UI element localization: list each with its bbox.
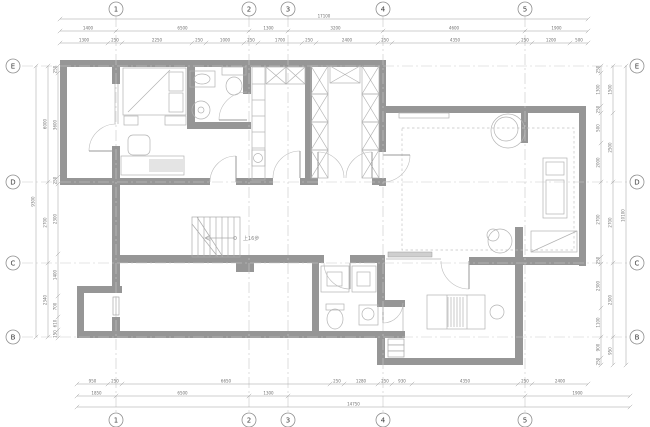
- wall: [60, 178, 116, 185]
- door-corridor-arc: [273, 151, 300, 178]
- dim-label: 250: [53, 65, 58, 73]
- dim-label: 14750: [347, 402, 360, 407]
- stair-arrow-head: [205, 238, 210, 241]
- dim-label: 2300: [53, 213, 58, 224]
- dim-label: 1300: [263, 391, 274, 396]
- dim-label: 2700: [596, 214, 601, 225]
- dim-label: 250: [596, 105, 601, 113]
- dim-label: 6000: [43, 118, 48, 129]
- dim-label: 1300: [263, 26, 274, 31]
- wall: [377, 300, 405, 307]
- dim-label: 250: [333, 379, 341, 384]
- grid-bubble-label-3: 3: [286, 417, 290, 425]
- vanity-counter: [321, 266, 349, 292]
- dim-label: 1280: [356, 379, 367, 384]
- grid-bubble-label-B: B: [635, 334, 640, 342]
- dim-label: 150: [53, 330, 58, 338]
- dim-label: 4600: [449, 26, 460, 31]
- wall: [379, 180, 386, 186]
- vanity-basin: [357, 272, 370, 286]
- dim-label: 6500: [177, 391, 188, 396]
- door-bathroom2-arc: [324, 263, 350, 289]
- dim-label: 930: [398, 379, 406, 384]
- dim-label: 1300: [79, 38, 90, 43]
- dim-label: 950: [608, 347, 613, 355]
- washer-drum: [254, 154, 263, 163]
- wall: [236, 178, 273, 185]
- dim-label: 950: [89, 379, 97, 384]
- wall: [77, 286, 84, 338]
- dim-label: 2500: [608, 142, 613, 153]
- wall: [243, 60, 251, 94]
- dim-label: 1100: [596, 317, 601, 328]
- dim-label: 250: [111, 38, 119, 43]
- desk: [121, 156, 184, 175]
- wall: [187, 60, 195, 124]
- grid-bubble-label-E: E: [11, 63, 15, 71]
- floor-plan: 1710014006500130032004600190013002502250…: [0, 0, 650, 427]
- floor-plan-page: 1710014006500130032004600190013002502250…: [0, 0, 650, 427]
- grid-bubble-label-E: E: [635, 63, 639, 71]
- wall: [485, 257, 586, 265]
- dim-label: 2300: [596, 280, 601, 291]
- dim-label: 17100: [318, 14, 331, 19]
- dim-label: 2700: [608, 217, 613, 228]
- dim-label: 250: [247, 38, 255, 43]
- dim-label: 4350: [460, 379, 471, 384]
- grid-bubble-label-2: 2: [247, 6, 251, 14]
- toilet-bowl: [327, 309, 343, 329]
- dim-label: 4350: [450, 38, 461, 43]
- grid-bubble-label-1: 1: [114, 417, 118, 425]
- ac-vent: [399, 113, 449, 118]
- grid-bubble-label-5: 5: [523, 6, 527, 14]
- door-left-room-arc: [89, 124, 116, 151]
- dim-label: 250: [521, 38, 529, 43]
- dim-label: 500: [596, 124, 601, 132]
- door-bathroom-arc: [219, 92, 247, 120]
- dim-label: 6650: [221, 379, 232, 384]
- dim-label: 250: [111, 379, 119, 384]
- door-closet-right-arc: [346, 152, 372, 178]
- shower-sink-basin: [362, 308, 374, 320]
- dim-label: 9300: [31, 196, 36, 207]
- grid-bubble-label-D: D: [634, 179, 639, 187]
- stool: [490, 305, 504, 319]
- dim-label: 1500: [608, 84, 613, 95]
- grid-bubble-label-D: D: [10, 179, 15, 187]
- dim-label: 900: [596, 343, 601, 351]
- wall: [515, 227, 523, 365]
- dim-label: 1000: [220, 38, 231, 43]
- lounge-chair-back: [487, 229, 499, 241]
- dim-label: 3600: [53, 119, 58, 130]
- dim-label: 10100: [621, 209, 626, 222]
- dim-label: 250: [521, 379, 529, 384]
- wall: [377, 255, 385, 305]
- dim-label: 1850: [91, 391, 102, 396]
- dim-label: 2700: [43, 217, 48, 228]
- wall: [377, 358, 523, 365]
- door-gym-side-arc: [383, 155, 410, 182]
- grid-bubble-label-2: 2: [247, 417, 251, 425]
- dim-label: 610: [53, 319, 58, 327]
- dim-label: 1300: [596, 84, 601, 95]
- wall: [379, 60, 386, 152]
- wall: [187, 122, 251, 129]
- bed-fold-line: [128, 70, 170, 112]
- daybed-line: [531, 231, 577, 252]
- vanity-counter: [352, 266, 376, 292]
- dim-label: 250: [596, 256, 601, 264]
- toilet-cistern: [222, 67, 246, 75]
- wall: [377, 331, 385, 365]
- grid-bubble-label-C: C: [11, 260, 16, 268]
- wall-sink-basin: [194, 74, 210, 84]
- dim-label: 250: [305, 38, 313, 43]
- dim-label: 3200: [330, 26, 341, 31]
- grid-bubble-label-3: 3: [286, 6, 290, 14]
- door-bedroom-arc: [210, 156, 236, 182]
- treadmill-console: [546, 162, 564, 175]
- bedside-rug: [124, 116, 138, 125]
- dim-label: 1200: [546, 38, 557, 43]
- door-spa-arc: [441, 261, 469, 289]
- dim-label: 250: [596, 357, 601, 365]
- wall: [120, 178, 210, 185]
- dim-label: 500: [575, 38, 583, 43]
- dim-label: 1900: [551, 26, 562, 31]
- treadmill: [543, 158, 567, 218]
- grid-bubble-label-4: 4: [381, 417, 386, 425]
- stair-arrow-head: [205, 236, 210, 239]
- wall: [579, 106, 586, 266]
- treadmill-belt: [546, 180, 564, 214]
- wall: [386, 106, 586, 113]
- grid-bubble-label-4: 4: [381, 6, 386, 14]
- dim-label: 250: [381, 379, 389, 384]
- bed-pillow: [169, 93, 183, 112]
- grid-bubble-label-B: B: [11, 334, 16, 342]
- dim-label: 250: [381, 38, 389, 43]
- dim-label: 250: [596, 65, 601, 73]
- bed-foot-bench: [165, 116, 186, 125]
- hanging-chair-inner: [494, 117, 518, 141]
- washer: [252, 150, 265, 166]
- sliding-door-panel: [388, 252, 432, 257]
- grid-bubble-label-1: 1: [114, 6, 118, 14]
- bed-pillow: [169, 72, 183, 91]
- exterior-steps: [388, 339, 404, 345]
- dim-label: 250: [53, 176, 58, 184]
- door-closet-left-arc: [318, 152, 344, 178]
- dim-label: 2340: [43, 294, 48, 305]
- grid-bubble-label-5: 5: [523, 417, 527, 425]
- dim-label: 1900: [572, 391, 583, 396]
- wall: [300, 178, 318, 185]
- dim-label: 2400: [342, 38, 353, 43]
- grid-bubble-label-C: C: [635, 260, 640, 268]
- wall: [469, 257, 485, 265]
- dim-label: 2400: [555, 379, 566, 384]
- wall: [60, 60, 67, 185]
- wall: [118, 255, 312, 263]
- dim-label: 700: [53, 302, 58, 310]
- wall: [236, 263, 254, 272]
- dim-label: 6500: [177, 26, 188, 31]
- exterior-steps: [388, 345, 404, 351]
- wall: [312, 255, 319, 333]
- exterior-steps: [388, 351, 404, 357]
- dim-label: 1700: [275, 38, 286, 43]
- massage-table: [427, 295, 485, 329]
- toilet-bowl: [226, 77, 242, 95]
- dim-label: 250: [195, 38, 203, 43]
- dim-label: 2000: [596, 157, 601, 168]
- hanging-chair: [491, 114, 525, 148]
- dim-label: 1400: [53, 269, 58, 280]
- dim-label: 1400: [83, 26, 94, 31]
- dim-label: 2250: [152, 38, 163, 43]
- dim-label: 2300: [608, 294, 613, 305]
- desk-chair: [128, 135, 150, 155]
- round-basin-drain: [198, 107, 204, 113]
- wall: [350, 255, 377, 263]
- stair-label: 上16步: [243, 235, 259, 242]
